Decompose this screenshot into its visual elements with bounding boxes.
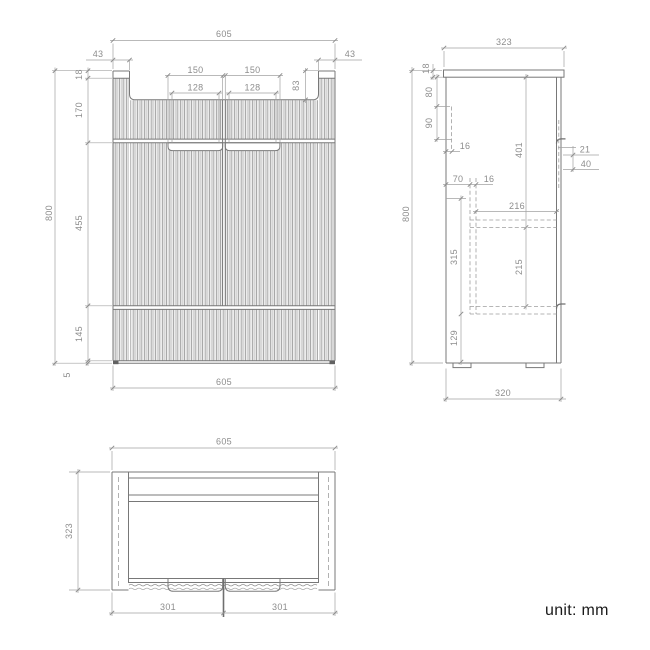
side-dim-total-height: 800	[401, 206, 411, 222]
side-dim-depth-top: 323	[496, 37, 512, 47]
front-dim-side-panel-left: 43	[93, 49, 104, 59]
side-dim-top-thickness: 18	[421, 63, 431, 74]
side-countertop	[444, 70, 565, 77]
side-dim-handle-recess: 40	[581, 159, 592, 169]
side-dim-depth-bottom: 320	[495, 388, 511, 398]
side-view: 323 18 80 90 16 70 16 216 401 21 40 315 …	[401, 37, 599, 402]
side-dim-upper-inner-height: 401	[514, 142, 524, 158]
unit-caption: unit: mm	[545, 602, 609, 620]
top-dim-door-right: 301	[272, 602, 288, 612]
drawing: 605 43 43 150 150 128 128 83 18 170 455 …	[0, 0, 650, 650]
front-dim-side-panel-right: 43	[345, 49, 356, 59]
side-dim-drawer-back-offset: 70	[453, 174, 464, 184]
side-dimension-ticks	[410, 46, 575, 401]
side-dim-rail-height: 90	[424, 118, 434, 129]
top-dim-depth: 323	[64, 523, 74, 539]
top-outline	[112, 472, 335, 590]
side-dim-rail-top-offset: 80	[424, 87, 434, 98]
front-foot-right	[330, 361, 336, 364]
side-dim-panel-thickness: 16	[484, 174, 495, 184]
technical-drawing-page: 605 43 43 150 150 128 128 83 18 170 455 …	[0, 0, 650, 650]
side-dimension-lines	[409, 48, 599, 402]
side-dim-back-panel-thickness: 16	[460, 141, 471, 151]
front-handle-recess-left	[168, 143, 223, 151]
side-foot-back	[453, 363, 471, 368]
top-hidden-lines	[119, 477, 329, 586]
side-dim-lower-inner-height: 315	[449, 249, 459, 265]
front-dim-width-top: 605	[216, 29, 232, 39]
front-dim-handle-inner-right: 128	[245, 83, 261, 93]
front-dim-top-thickness: 18	[74, 69, 84, 80]
side-hidden-lines	[452, 107, 559, 315]
front-dim-upper-height: 170	[74, 102, 84, 118]
side-foot-front	[526, 363, 544, 368]
front-dim-total-height: 800	[44, 205, 54, 221]
front-dim-base-gap: 5	[62, 372, 72, 377]
front-foot-left	[113, 361, 119, 364]
front-dim-handle-outer-right: 150	[245, 65, 261, 75]
side-dim-inner-depth: 216	[509, 201, 525, 211]
front-dim-recess-depth: 83	[291, 80, 301, 91]
side-dim-base-height: 129	[449, 330, 459, 346]
front-handle-recess-right	[225, 143, 280, 151]
top-view: 605 323 301 301	[64, 437, 338, 618]
front-flute-texture	[113, 79, 335, 361]
top-dim-width: 605	[216, 437, 232, 447]
front-dim-drawer-height: 145	[74, 326, 84, 342]
side-dim-shelf-spacing: 215	[514, 259, 524, 275]
front-dim-door-height: 455	[74, 215, 84, 231]
top-dim-door-left: 301	[160, 602, 176, 612]
front-dim-handle-outer-left: 150	[188, 65, 204, 75]
front-dim-width-bottom: 605	[216, 377, 232, 387]
front-view: 605 43 43 150 150 128 128 83 18 170 455 …	[44, 29, 362, 391]
front-dim-handle-inner-left: 128	[188, 83, 204, 93]
side-dim-handle-lip: 21	[580, 145, 591, 155]
